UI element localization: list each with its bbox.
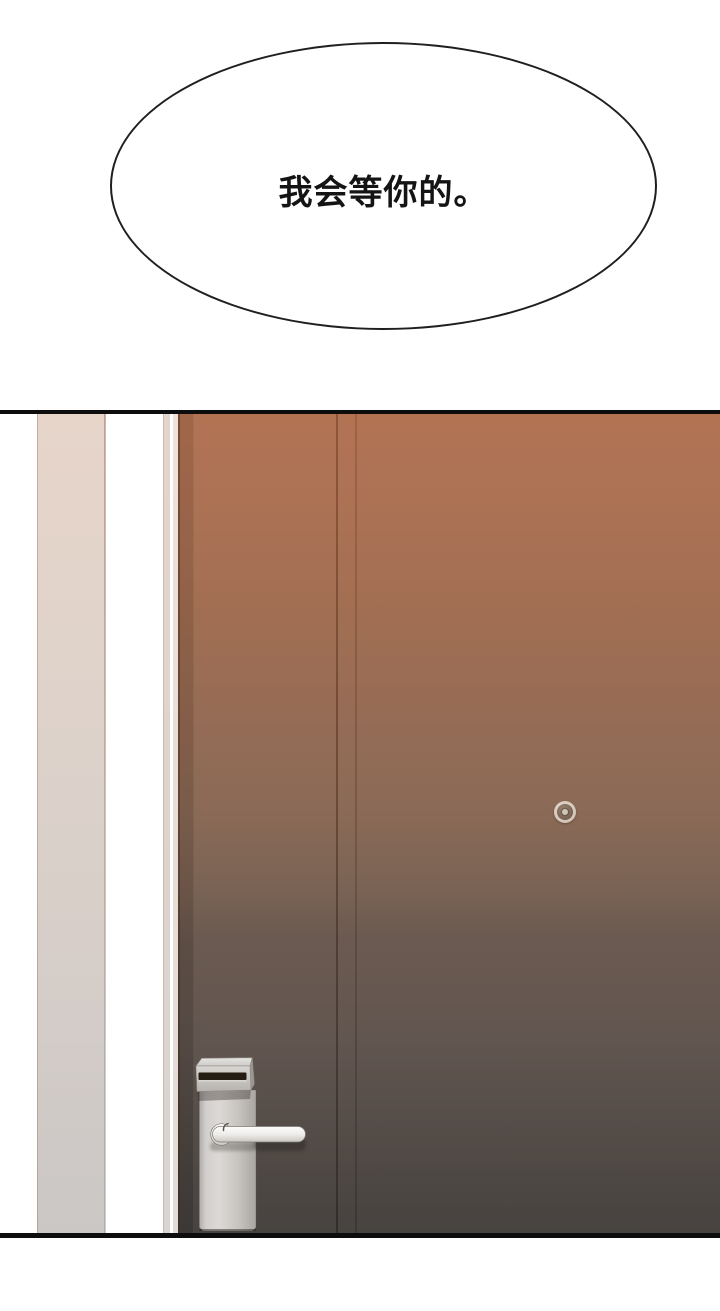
lock-plate-bottom-shadow: [199, 1229, 256, 1231]
card-reader-box-top: [196, 1058, 252, 1066]
speech-bubble-text: 我会等你的。: [279, 159, 489, 214]
card-slot: [199, 1073, 247, 1081]
card-slot-highlight: [199, 1080, 247, 1081]
door-seam-right: [355, 414, 357, 1233]
door-seam-left: [336, 414, 338, 1233]
speech-bubble: 我会等你的。: [110, 42, 657, 330]
peephole-icon: [554, 801, 576, 823]
door-frame-casing-outer: [163, 414, 170, 1233]
wall-column-edge: [104, 414, 106, 1233]
comic-page: 我会等你的。: [0, 0, 720, 1311]
comic-panel: [0, 410, 720, 1238]
peephole-lens: [562, 809, 568, 815]
door-lock-assembly: [190, 1050, 320, 1235]
wall-column: [37, 414, 105, 1233]
lock-plate: [199, 1090, 256, 1231]
door-handle-bar: [213, 1127, 306, 1143]
